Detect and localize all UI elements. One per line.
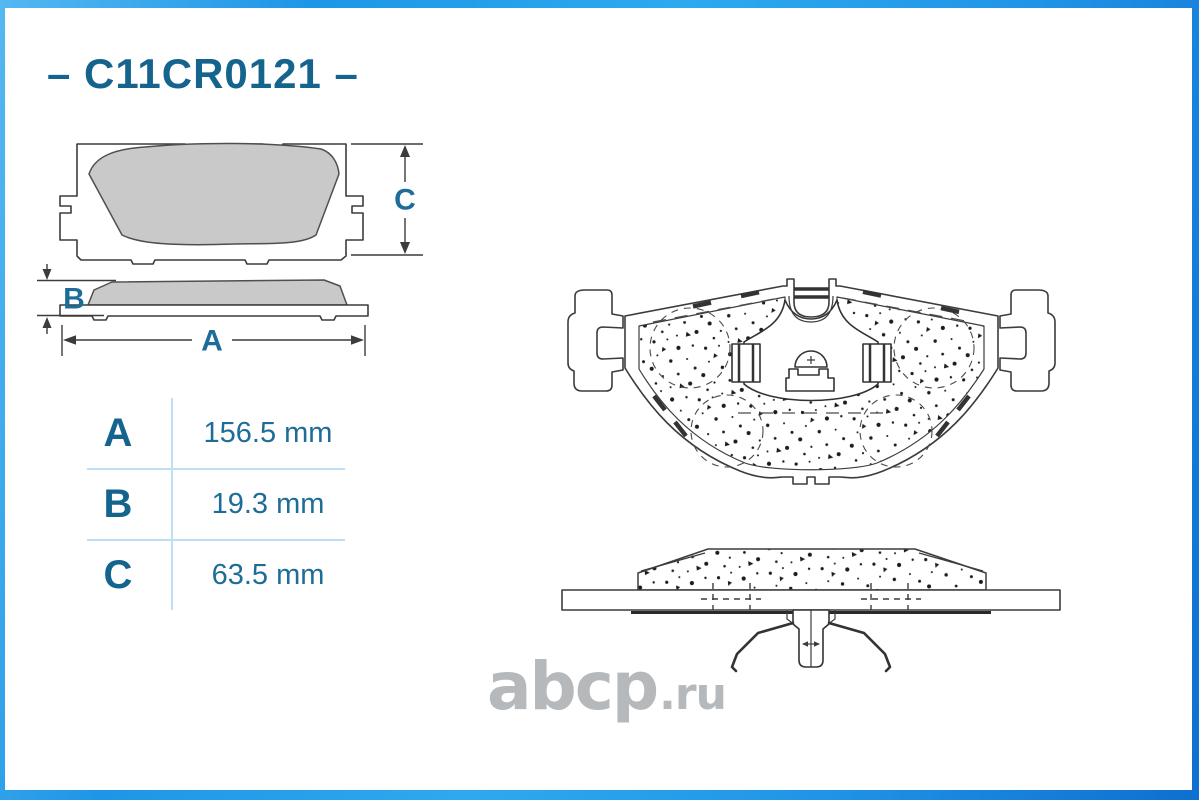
rear-view-drawing — [553, 270, 1070, 500]
dimension-b-label: B — [63, 283, 85, 316]
dimension-value: 156.5 mm — [171, 417, 365, 450]
dimension-label: C — [65, 553, 171, 598]
dimension-value: 19.3 mm — [171, 488, 365, 521]
table-row: A 156.5 mm — [65, 398, 365, 468]
front-view-drawing: C — [45, 134, 430, 274]
dimension-value: 63.5 mm — [171, 559, 365, 592]
product-image-page: { "product": { "part_number": "C11CR0121… — [0, 0, 1199, 800]
bottom-backing-plate — [562, 590, 1060, 610]
dimension-a: A — [62, 325, 365, 358]
friction-pad — [89, 143, 339, 244]
table-row: C 63.5 mm — [65, 540, 365, 610]
dimension-c-label: C — [394, 184, 416, 217]
dimension-label: A — [65, 411, 171, 456]
guide-ear-right — [1000, 290, 1055, 391]
dimension-label: B — [65, 482, 171, 527]
guide-ear-left — [568, 290, 623, 391]
part-number-title: – C11CR0121 – — [47, 50, 359, 98]
watermark-main-text: abcp — [487, 654, 657, 720]
side-backing-plate — [60, 305, 368, 320]
watermark-suffix-text: .ru — [659, 669, 726, 720]
table-row: B 19.3 mm — [65, 469, 365, 539]
dimension-a-label: A — [201, 325, 223, 358]
shim-clip-right — [863, 344, 891, 382]
clip-leg-right — [829, 623, 890, 671]
clip-leg-left — [732, 623, 793, 671]
side-friction-pad — [88, 280, 347, 305]
side-view-drawing: B A — [30, 261, 425, 366]
shim-clip-left — [732, 344, 760, 382]
dimension-table: A 156.5 mm B 19.3 mm C 63.5 mm — [65, 398, 365, 610]
abcp-watermark: abcp .ru — [487, 654, 726, 720]
content-panel: – C11CR0121 – C B A A 156.5 mm — [5, 8, 1192, 790]
spring-bars — [794, 289, 829, 297]
bottom-friction-pad — [638, 549, 986, 590]
